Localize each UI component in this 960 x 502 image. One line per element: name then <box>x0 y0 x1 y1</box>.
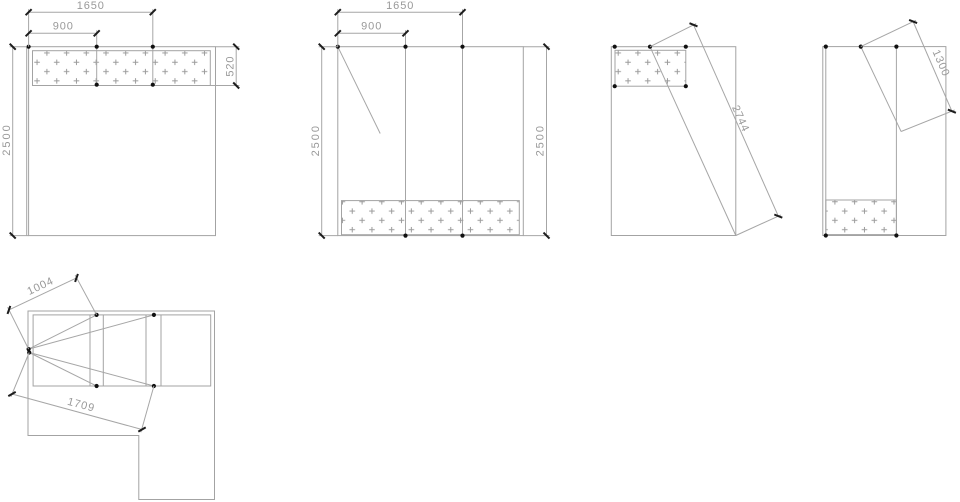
svg-text:900: 900 <box>361 20 382 32</box>
svg-text:2500: 2500 <box>535 124 547 156</box>
svg-text:900: 900 <box>53 20 74 32</box>
svg-text:2744: 2744 <box>729 104 751 135</box>
svg-text:2500: 2500 <box>310 124 322 156</box>
svg-text:1650: 1650 <box>386 0 414 12</box>
svg-text:1709: 1709 <box>66 396 96 415</box>
svg-text:1300: 1300 <box>930 48 952 79</box>
svg-text:2500: 2500 <box>1 123 13 155</box>
svg-text:520: 520 <box>225 56 237 77</box>
svg-text:1650: 1650 <box>77 0 105 12</box>
